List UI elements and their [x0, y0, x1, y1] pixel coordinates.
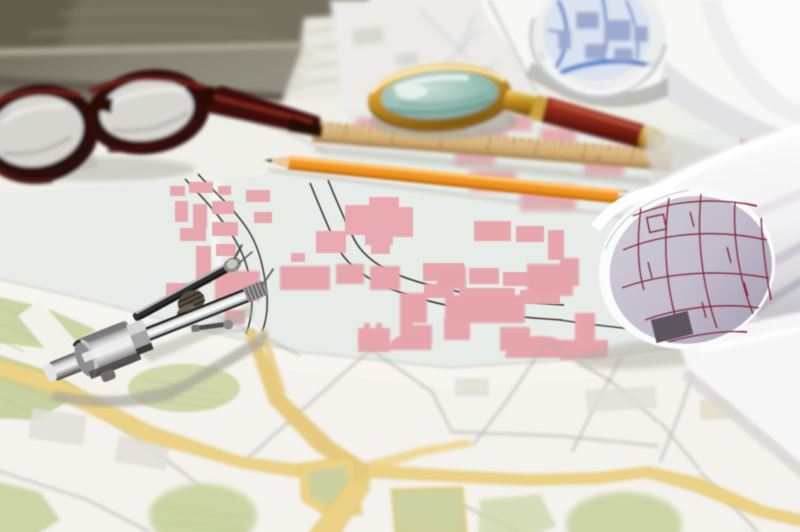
svg-text:13: 13 [594, 156, 602, 163]
